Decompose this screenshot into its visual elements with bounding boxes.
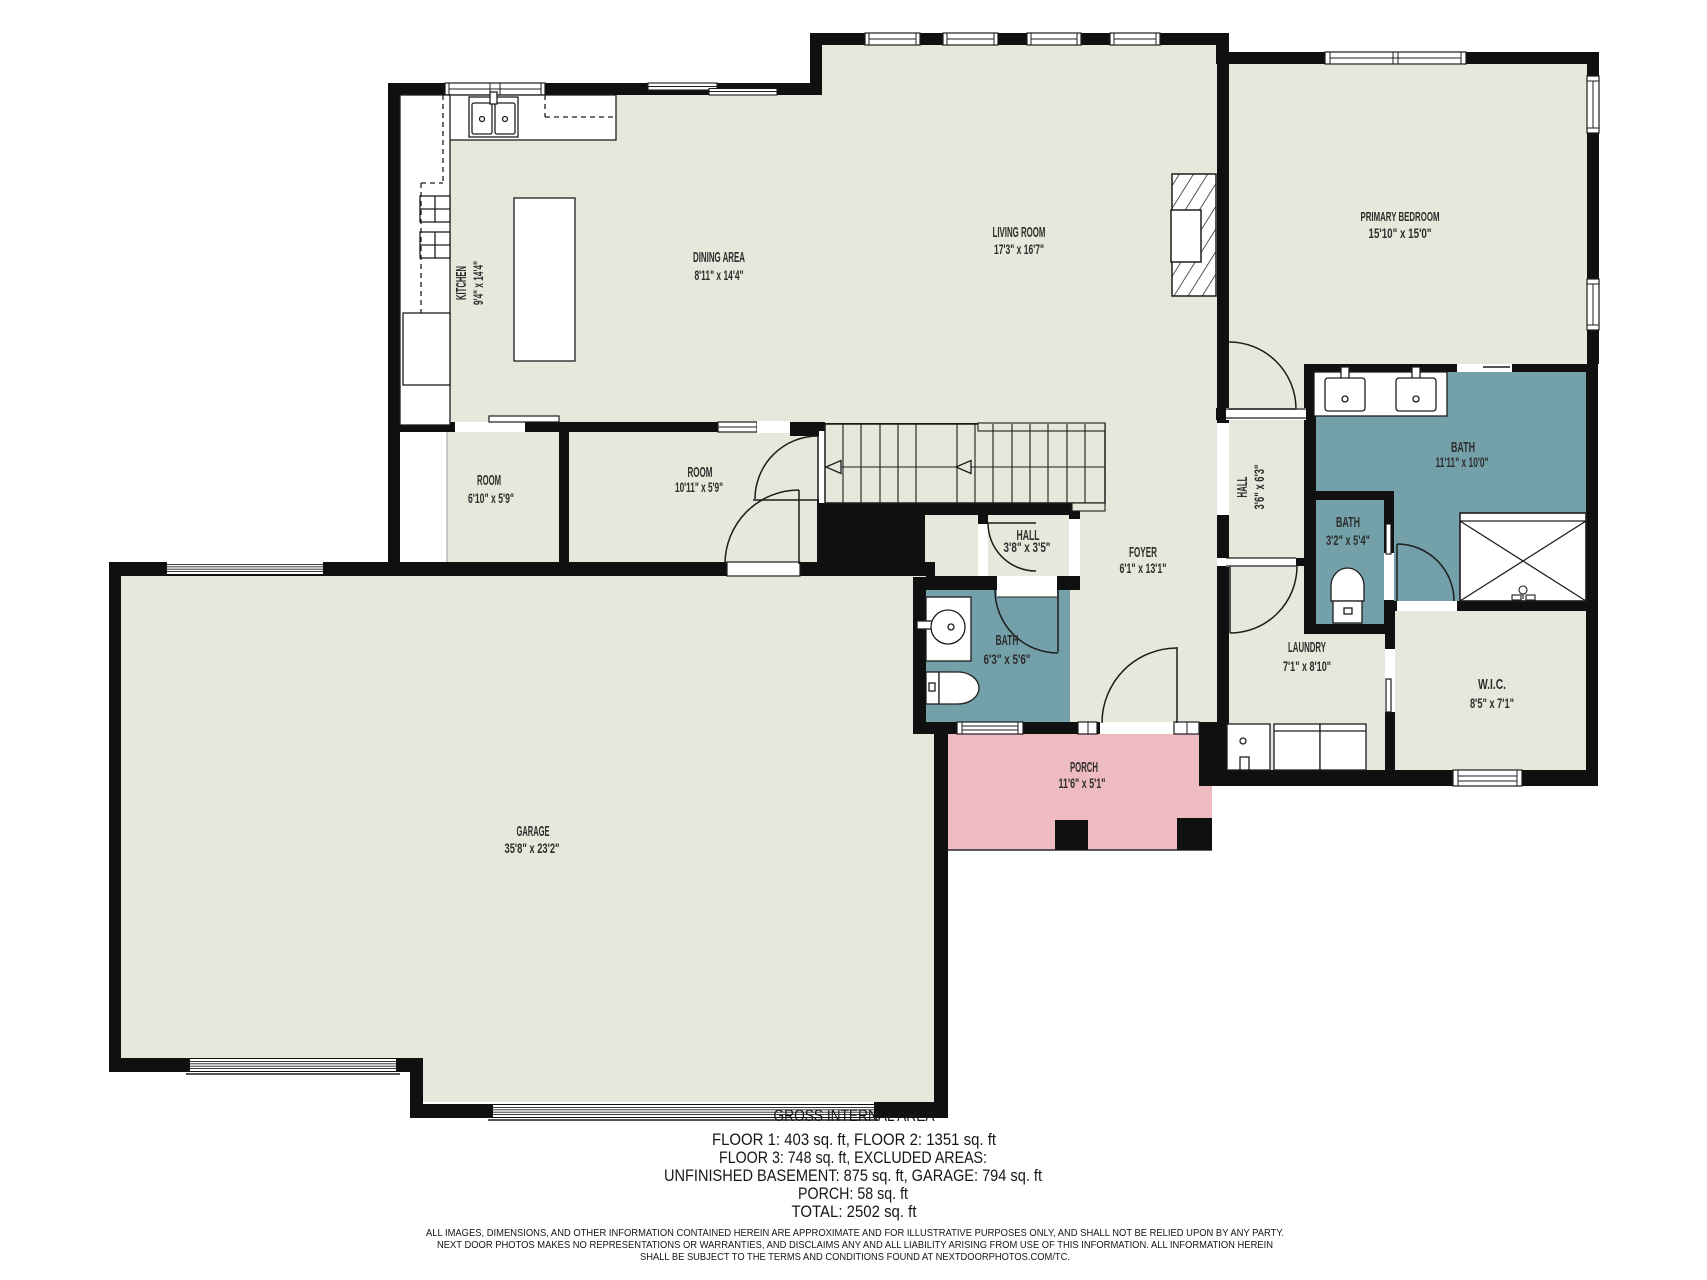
- svg-text:PORCH: 58 sq. ft: PORCH: 58 sq. ft: [798, 1185, 908, 1203]
- svg-text:TOTAL: 2502 sq. ft: TOTAL: 2502 sq. ft: [792, 1203, 917, 1221]
- svg-text:FLOOR 3: 748 sq. ft, EXCLUDED: FLOOR 3: 748 sq. ft, EXCLUDED AREAS:: [719, 1149, 987, 1167]
- svg-text:LAUNDRY: LAUNDRY: [1288, 639, 1326, 656]
- svg-text:6'10" x 5'9": 6'10" x 5'9": [468, 490, 514, 506]
- svg-text:GARAGE: GARAGE: [517, 823, 550, 840]
- svg-text:PRIMARY BEDROOM: PRIMARY BEDROOM: [1361, 209, 1440, 224]
- svg-text:FLOOR 1: 403 sq. ft, FLOOR 2:: FLOOR 1: 403 sq. ft, FLOOR 2: 1351 sq. f…: [712, 1131, 996, 1149]
- svg-text:W.I.C.: W.I.C.: [1478, 676, 1506, 693]
- svg-text:3'6" x 6'3": 3'6" x 6'3": [1251, 465, 1267, 510]
- svg-text:8'5" x 7'1": 8'5" x 7'1": [1470, 695, 1514, 711]
- svg-text:7'1" x 8'10": 7'1" x 8'10": [1283, 658, 1331, 674]
- svg-text:15'10" x 15'0": 15'10" x 15'0": [1369, 225, 1432, 241]
- svg-text:17'3" x 16'7": 17'3" x 16'7": [994, 241, 1044, 257]
- svg-text:3'8" x 3'5": 3'8" x 3'5": [1004, 539, 1051, 555]
- svg-text:ROOM: ROOM: [477, 472, 501, 489]
- svg-text:11'6" x 5'1": 11'6" x 5'1": [1059, 775, 1106, 791]
- svg-text:PORCH: PORCH: [1070, 759, 1098, 776]
- svg-text:BATH: BATH: [1336, 514, 1360, 531]
- svg-text:DINING AREA: DINING AREA: [693, 249, 745, 266]
- svg-text:UNFINISHED BASEMENT: 875 sq. f: UNFINISHED BASEMENT: 875 sq. ft, GARAGE:…: [664, 1167, 1042, 1185]
- svg-text:SHALL BE SUBJECT TO THE TERMS: SHALL BE SUBJECT TO THE TERMS AND CONDIT…: [640, 1251, 1070, 1263]
- svg-text:HALL: HALL: [1234, 477, 1251, 498]
- svg-text:GROSS INTERNAL AREA: GROSS INTERNAL AREA: [774, 1107, 935, 1125]
- svg-text:35'8" x 23'2": 35'8" x 23'2": [505, 840, 560, 856]
- svg-text:LIVING ROOM: LIVING ROOM: [993, 224, 1046, 241]
- svg-text:BATH: BATH: [996, 632, 1019, 649]
- svg-text:6'1" x 13'1": 6'1" x 13'1": [1120, 560, 1167, 576]
- svg-text:ALL IMAGES, DIMENSIONS, AND OT: ALL IMAGES, DIMENSIONS, AND OTHER INFORM…: [426, 1227, 1284, 1239]
- svg-text:11'11" x 10'0": 11'11" x 10'0": [1436, 454, 1489, 470]
- svg-text:9'4" x 14'4": 9'4" x 14'4": [470, 261, 486, 305]
- svg-text:NEXT DOOR PHOTOS MAKES NO REPR: NEXT DOOR PHOTOS MAKES NO REPRESENTATION…: [437, 1239, 1273, 1251]
- svg-text:6'3" x 5'6": 6'3" x 5'6": [984, 651, 1031, 667]
- svg-text:3'2" x 5'4": 3'2" x 5'4": [1326, 532, 1370, 548]
- svg-text:KITCHEN: KITCHEN: [453, 266, 470, 300]
- svg-text:8'11" x 14'4": 8'11" x 14'4": [695, 267, 744, 283]
- svg-text:10'11" x 5'9": 10'11" x 5'9": [675, 479, 723, 495]
- svg-text:FOYER: FOYER: [1129, 544, 1157, 561]
